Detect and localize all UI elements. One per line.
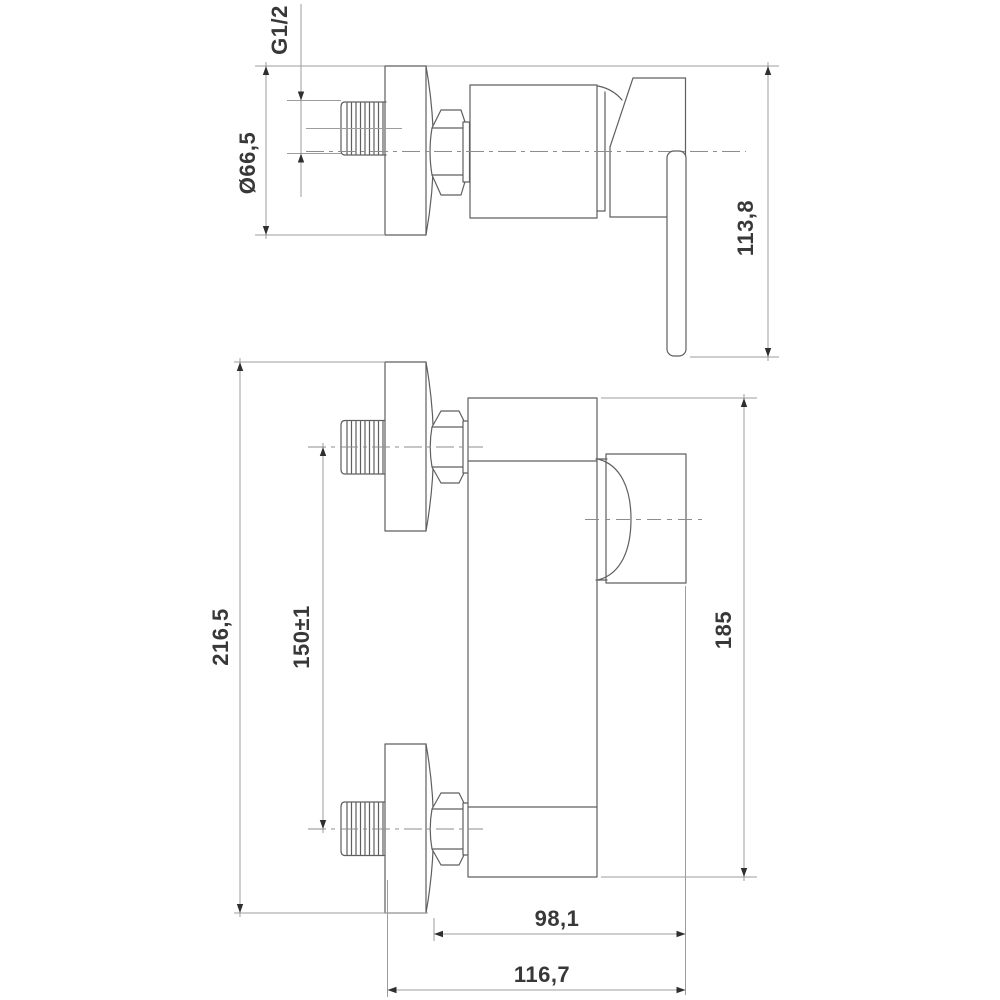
handle-front [596, 454, 686, 583]
label-depth-to-flange: 98,1 [535, 906, 580, 931]
label-overall-height: 216,5 [208, 608, 233, 666]
dim-depth-to-flange: 98,1 [434, 906, 686, 941]
shoulder-arc [598, 86, 622, 100]
dim-flange-diameter: Ø66,5 [235, 62, 385, 239]
label-flange-diameter: Ø66,5 [235, 132, 260, 194]
valve-body-front [468, 398, 597, 877]
label-overall-depth: 116,7 [514, 962, 570, 987]
technical-drawing-page: G1/2 Ø66,5 113,8 [0, 0, 1000, 1000]
handle-grip-front [606, 454, 686, 583]
dim-inlet-spacing: 150±1 [289, 443, 326, 833]
label-thread-size: G1/2 [267, 5, 292, 55]
dim-fitting-height: 113,8 [690, 62, 779, 361]
top-view: G1/2 Ø66,5 113,8 [235, 4, 779, 361]
label-body-height: 185 [711, 611, 736, 649]
front-view: 216,5 150±1 185 98,1 [208, 358, 757, 997]
dim-thread-size: G1/2 [267, 4, 341, 197]
dim-overall-depth: 116,7 [388, 880, 686, 997]
label-fitting-height: 113,8 [733, 200, 758, 256]
label-inlet-spacing: 150±1 [289, 605, 314, 669]
shower-mixer-dimension-drawing: G1/2 Ø66,5 113,8 [0, 0, 1000, 1000]
handle-lever [667, 151, 686, 356]
wall-flange [385, 66, 433, 235]
